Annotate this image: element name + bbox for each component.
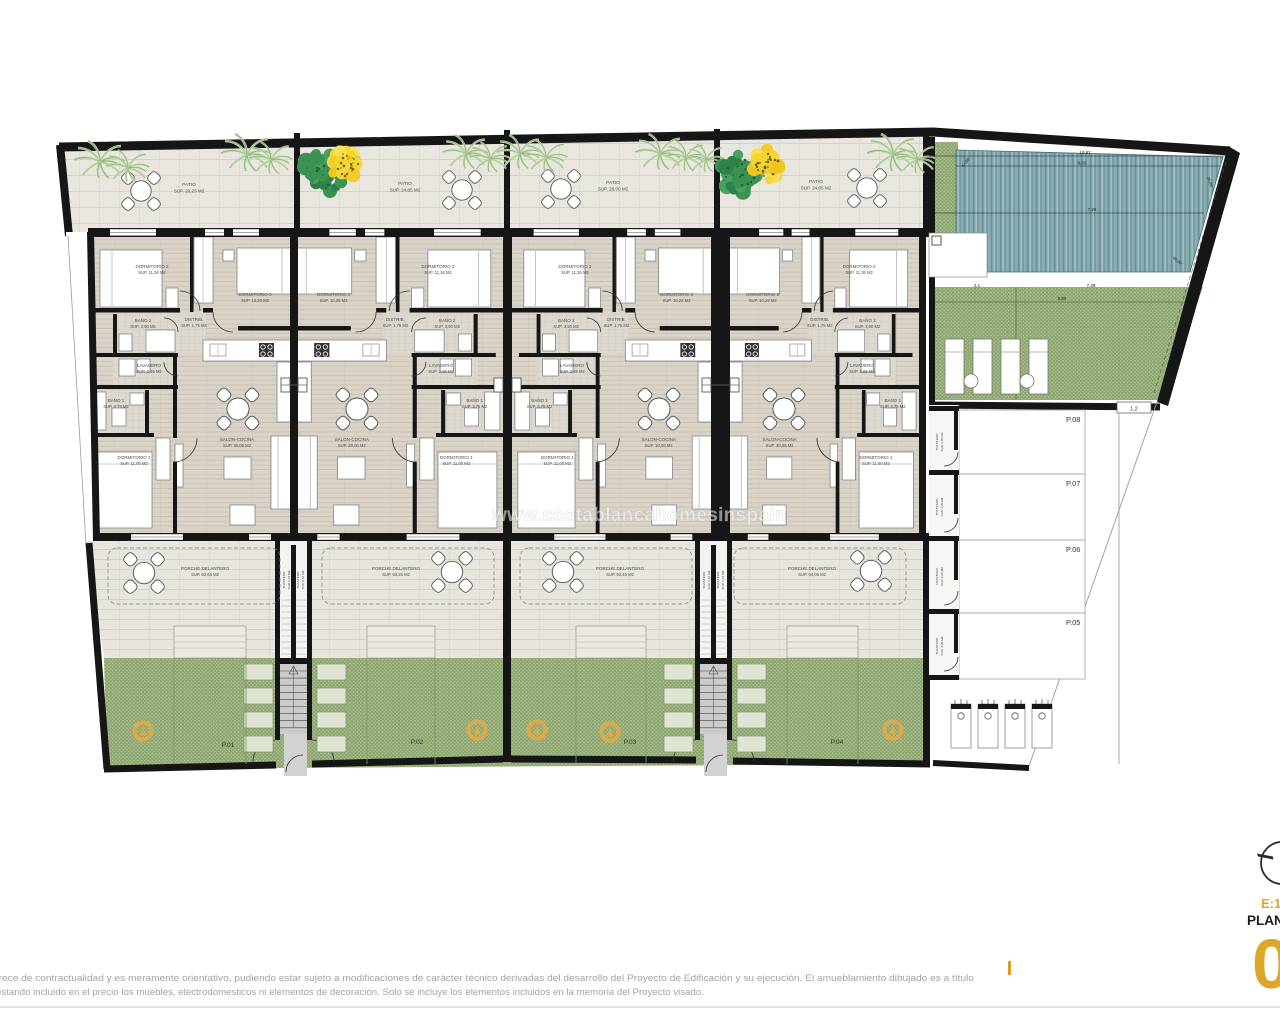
- svg-text:PATIO: PATIO: [398, 181, 412, 187]
- svg-text:DORMITORIO 2: DORMITORIO 2: [559, 264, 592, 269]
- svg-text:BAÑO 1: BAÑO 1: [108, 397, 125, 403]
- svg-text:PORCHE DELANTERO: PORCHE DELANTERO: [181, 566, 230, 571]
- svg-text:DISTRIB.: DISTRIB.: [386, 317, 405, 322]
- svg-text:P.02: P.02: [411, 739, 424, 746]
- svg-text:P.03: P.03: [624, 739, 637, 746]
- svg-text:SUP. 11,00 M2: SUP. 11,00 M2: [120, 461, 148, 466]
- svg-text:SUP. 3,90 M2: SUP. 3,90 M2: [553, 324, 579, 329]
- svg-text:BAÑO 2: BAÑO 2: [859, 317, 876, 323]
- svg-text:9,65: 9,65: [1078, 161, 1087, 166]
- svg-text:SALON-COCINA: SALON-COCINA: [335, 437, 369, 442]
- svg-text:SUP. 3,75 M2: SUP. 3,75 M2: [462, 404, 488, 409]
- svg-text:BAÑO 1: BAÑO 1: [466, 397, 483, 403]
- svg-text:SUP. 11,00 M2: SUP. 11,00 M2: [862, 461, 890, 466]
- svg-text:SUP. 26,00 M2: SUP. 26,00 M2: [598, 187, 629, 192]
- svg-text:www.costablancahomesinspain: www.costablancahomesinspain: [491, 505, 788, 526]
- svg-text:DORMITORIO 2: DORMITORIO 2: [843, 264, 876, 269]
- svg-text:P.06: P.06: [1066, 545, 1080, 554]
- svg-text:TRASTERO: TRASTERO: [935, 567, 939, 584]
- svg-text:LAVADERO: LAVADERO: [560, 363, 584, 368]
- svg-text:SUP. 10,26 M2: SUP. 10,26 M2: [320, 298, 349, 303]
- svg-text:SUP. 3,75 M2: SUP. 3,75 M2: [527, 404, 553, 409]
- svg-text:SUP. 2,05 M2: SUP. 2,05 M2: [940, 636, 944, 655]
- svg-text:DISTRIB.: DISTRIB.: [607, 317, 626, 322]
- svg-text:SUP. 1,75 M2: SUP. 1,75 M2: [181, 323, 207, 328]
- svg-text:DORMITORIO 1: DORMITORIO 1: [440, 455, 473, 460]
- svg-text:SUP. 3,90 M2: SUP. 3,90 M2: [130, 324, 156, 329]
- svg-text:SUP. 24,05 M2: SUP. 24,05 M2: [390, 188, 421, 193]
- svg-text:TRASTERO: TRASTERO: [716, 571, 720, 588]
- svg-text:P.08: P.08: [1066, 415, 1080, 424]
- svg-text:LAVADERO: LAVADERO: [429, 363, 453, 368]
- svg-text:PORCHE DELANTERO: PORCHE DELANTERO: [596, 566, 645, 571]
- svg-text:P.01: P.01: [222, 742, 235, 749]
- svg-text:SUP. 30,06 M2: SUP. 30,06 M2: [223, 443, 252, 448]
- svg-text:SALON-COCINA: SALON-COCINA: [642, 437, 676, 442]
- svg-text:LAVADERO: LAVADERO: [137, 363, 161, 368]
- svg-text:DORMITORIO 2: DORMITORIO 2: [136, 264, 169, 269]
- svg-text:DORMITORIO 1: DORMITORIO 1: [118, 455, 151, 460]
- svg-text:7,29: 7,29: [1088, 207, 1097, 212]
- svg-text:DORMITORIO 3: DORMITORIO 3: [746, 292, 779, 297]
- svg-text:PATIO: PATIO: [809, 179, 823, 185]
- svg-text:o estando incluido en el preci: o estando incluido en el precio los mueb…: [0, 987, 704, 997]
- svg-text:SUP. 10,26 M2: SUP. 10,26 M2: [663, 298, 692, 303]
- svg-text:SUP. 2,16 M2: SUP. 2,16 M2: [301, 570, 305, 589]
- svg-text:PORCHE DELANTERO: PORCHE DELANTERO: [372, 566, 421, 571]
- svg-text:SUP. 63,46 M2: SUP. 63,46 M2: [606, 572, 635, 577]
- svg-text:SUP. 11,36 M2: SUP. 11,36 M2: [138, 270, 166, 275]
- svg-text:BAÑO 2: BAÑO 2: [135, 317, 152, 323]
- svg-text:DORMITORIO 3: DORMITORIO 3: [317, 292, 350, 297]
- svg-text:SUP. 2,16 M2: SUP. 2,16 M2: [287, 570, 291, 589]
- svg-text:SUP. 3,90 M2: SUP. 3,90 M2: [855, 324, 881, 329]
- svg-text:SUP. 2,65 M2: SUP. 2,65 M2: [559, 369, 585, 374]
- svg-text:SALON-COCINA: SALON-COCINA: [220, 437, 254, 442]
- svg-text:BAÑO 1: BAÑO 1: [531, 397, 548, 403]
- svg-text:TRASTERO: TRASTERO: [935, 433, 939, 450]
- svg-text:BAÑO 2: BAÑO 2: [439, 317, 456, 323]
- svg-text:SUP. 11,36 M2: SUP. 11,36 M2: [424, 270, 452, 275]
- svg-text:DISTRIB.: DISTRIB.: [810, 317, 829, 322]
- svg-text:DORMITORIO 3: DORMITORIO 3: [239, 292, 272, 297]
- svg-text:SUP. 1,75 M2: SUP. 1,75 M2: [604, 323, 630, 328]
- svg-text:SUP. 2,16 M2: SUP. 2,16 M2: [707, 570, 711, 589]
- svg-text:5,60: 5,60: [1058, 296, 1067, 301]
- svg-text:SUP. 3,75 M2: SUP. 3,75 M2: [880, 404, 906, 409]
- svg-text:SUP. 1,75 M2: SUP. 1,75 M2: [383, 323, 409, 328]
- svg-text:DORMITORIO 1: DORMITORIO 1: [541, 455, 574, 460]
- svg-text:SUP. 3,90 M2: SUP. 3,90 M2: [434, 324, 460, 329]
- svg-text:SUP. 64,06 M2: SUP. 64,06 M2: [798, 572, 827, 577]
- svg-text:SUP. 2,05 M2: SUP. 2,05 M2: [940, 432, 944, 451]
- svg-text:SUP. 2,65 M2: SUP. 2,65 M2: [136, 369, 162, 374]
- svg-text:SUP. 2,65 M2: SUP. 2,65 M2: [849, 369, 875, 374]
- svg-text:SUP. 2,16 M2: SUP. 2,16 M2: [721, 570, 725, 589]
- svg-text:SUP. 30,06 M2: SUP. 30,06 M2: [766, 443, 795, 448]
- svg-text:0: 0: [1252, 925, 1280, 1003]
- svg-text:SUP. 2,05 M2: SUP. 2,05 M2: [940, 567, 944, 586]
- svg-text:SUP. 63,26 M2: SUP. 63,26 M2: [382, 572, 411, 577]
- svg-text:SUP. 26,23 M2: SUP. 26,23 M2: [174, 189, 205, 194]
- svg-text:SUP. 63,65 M2: SUP. 63,65 M2: [191, 572, 220, 577]
- svg-text:SALON-COCINA: SALON-COCINA: [762, 437, 796, 442]
- svg-text:SUP. 11,00 M2: SUP. 11,00 M2: [443, 461, 471, 466]
- svg-text:TRASTERO: TRASTERO: [935, 498, 939, 515]
- svg-text:TRASTERO: TRASTERO: [702, 571, 706, 588]
- svg-text:SUP. 10,26 M2: SUP. 10,26 M2: [241, 298, 270, 303]
- svg-text:SUP. 10,26 M2: SUP. 10,26 M2: [749, 298, 778, 303]
- svg-text:SUP. 24,05 M2: SUP. 24,05 M2: [801, 186, 832, 191]
- svg-text:SUP. 30,06 M2: SUP. 30,06 M2: [338, 443, 367, 448]
- svg-text:LAVADERO: LAVADERO: [850, 363, 874, 368]
- svg-text:PATIO: PATIO: [606, 180, 620, 186]
- svg-text:1,2: 1,2: [1130, 407, 1138, 413]
- svg-text:SUP. 11,36 M2: SUP. 11,36 M2: [845, 270, 873, 275]
- svg-text:SUP. 30,06 M2: SUP. 30,06 M2: [645, 443, 674, 448]
- svg-text:DISTRIB.: DISTRIB.: [184, 317, 203, 322]
- svg-text:SUP. 2,05 M2: SUP. 2,05 M2: [940, 497, 944, 516]
- svg-text:TRASTERO: TRASTERO: [935, 637, 939, 654]
- svg-text:P.04: P.04: [831, 739, 844, 746]
- svg-text:E:1: E:1: [1261, 896, 1280, 911]
- svg-text:DORMITORIO 2: DORMITORIO 2: [422, 264, 455, 269]
- svg-text:SUP. 11,00 M2: SUP. 11,00 M2: [544, 461, 572, 466]
- svg-text:TRASTERO: TRASTERO: [296, 571, 300, 588]
- svg-text:BAÑO 2: BAÑO 2: [558, 317, 575, 323]
- svg-text:DORMITORIO 1: DORMITORIO 1: [859, 455, 892, 460]
- svg-text:SUP. 11,36 M2: SUP. 11,36 M2: [561, 270, 589, 275]
- svg-text:SUP. 1,75 M2: SUP. 1,75 M2: [807, 323, 833, 328]
- svg-text:SUP. 3,75 M2: SUP. 3,75 M2: [103, 404, 129, 409]
- svg-text:P.07: P.07: [1066, 479, 1080, 488]
- svg-text:P.05: P.05: [1066, 618, 1080, 627]
- svg-text:carece de contractualidad y es: carece de contractualidad y es meramente…: [0, 973, 974, 983]
- svg-text:10,87: 10,87: [1079, 150, 1091, 155]
- svg-text:PORCHE DELANTERO: PORCHE DELANTERO: [788, 566, 837, 571]
- svg-text:TRASTERO: TRASTERO: [282, 571, 286, 588]
- svg-text:SUP. 2,65 M2: SUP. 2,65 M2: [428, 369, 454, 374]
- svg-text:DORMITORIO 3: DORMITORIO 3: [660, 292, 693, 297]
- svg-text:PATIO: PATIO: [182, 182, 196, 188]
- svg-text:BAÑO 1: BAÑO 1: [885, 397, 902, 403]
